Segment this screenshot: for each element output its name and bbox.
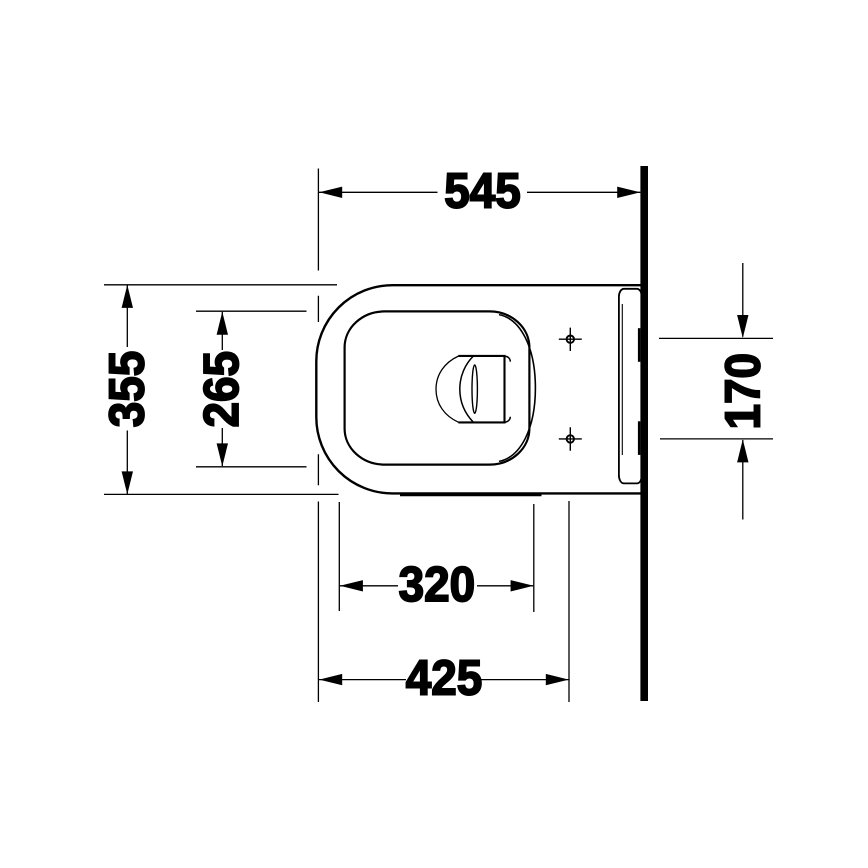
svg-text:320: 320 bbox=[399, 558, 476, 613]
svg-text:425: 425 bbox=[406, 651, 483, 706]
svg-text:170: 170 bbox=[716, 353, 771, 430]
svg-text:355: 355 bbox=[100, 351, 155, 428]
svg-text:545: 545 bbox=[444, 164, 521, 219]
svg-text:265: 265 bbox=[195, 351, 250, 428]
